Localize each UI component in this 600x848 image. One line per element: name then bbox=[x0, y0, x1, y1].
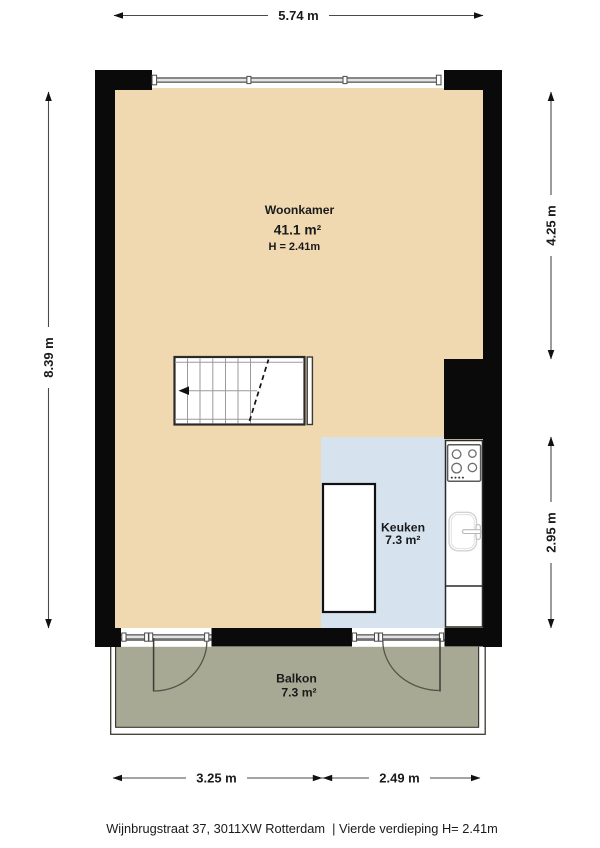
svg-text:4.25 m: 4.25 m bbox=[543, 205, 558, 245]
svg-text:5.74 m: 5.74 m bbox=[278, 8, 318, 23]
svg-text:Wijnbrugstraat 37, 3011XW Rott: Wijnbrugstraat 37, 3011XW Rotterdam | Vi… bbox=[106, 821, 498, 836]
svg-text:41.1 m²: 41.1 m² bbox=[274, 223, 322, 238]
svg-text:7.3 m²: 7.3 m² bbox=[385, 533, 420, 547]
svg-text:2.95 m: 2.95 m bbox=[543, 512, 558, 552]
svg-text:3.25 m: 3.25 m bbox=[196, 771, 236, 786]
svg-text:2.49 m: 2.49 m bbox=[379, 771, 419, 786]
svg-text:H = 2.41m: H = 2.41m bbox=[268, 241, 320, 253]
svg-text:7.3 m²: 7.3 m² bbox=[281, 686, 316, 700]
svg-text:Balkon: Balkon bbox=[276, 672, 317, 686]
svg-text:8.39 m: 8.39 m bbox=[41, 337, 56, 377]
svg-text:Woonkamer: Woonkamer bbox=[265, 203, 335, 217]
